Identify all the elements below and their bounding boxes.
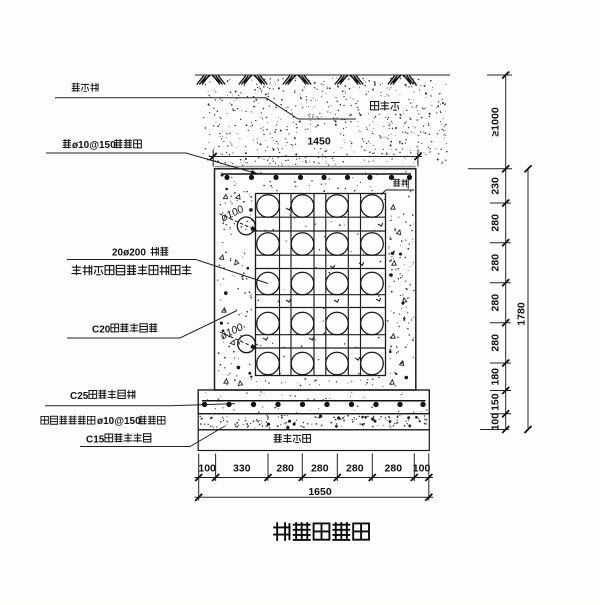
svg-text:280: 280 — [490, 334, 502, 352]
svg-text:C20: C20 — [92, 325, 111, 336]
svg-text:230: 230 — [490, 177, 502, 195]
svg-text:20ø200: 20ø200 — [112, 248, 146, 259]
svg-text:1780: 1780 — [516, 302, 528, 326]
svg-text:100: 100 — [413, 463, 431, 475]
svg-text:≥1000: ≥1000 — [490, 107, 502, 136]
svg-text:ø10@150: ø10@150 — [72, 140, 116, 151]
svg-text:280: 280 — [311, 463, 329, 475]
svg-text:ø10@150: ø10@150 — [97, 416, 141, 427]
svg-text:280: 280 — [490, 254, 502, 272]
svg-text:180: 180 — [490, 368, 502, 386]
svg-text:1650: 1650 — [308, 486, 332, 498]
svg-text:280: 280 — [490, 294, 502, 312]
svg-text:330: 330 — [233, 463, 251, 475]
svg-text:1450: 1450 — [307, 136, 331, 148]
svg-text:150: 150 — [490, 393, 502, 411]
svg-text:280: 280 — [276, 463, 294, 475]
svg-text:280: 280 — [490, 214, 502, 232]
svg-text:C25: C25 — [70, 391, 89, 402]
svg-text:C15: C15 — [86, 435, 105, 446]
svg-text:100: 100 — [490, 413, 502, 431]
svg-text:100: 100 — [198, 463, 216, 475]
svg-text:280: 280 — [385, 463, 403, 475]
svg-text:280: 280 — [346, 463, 364, 475]
